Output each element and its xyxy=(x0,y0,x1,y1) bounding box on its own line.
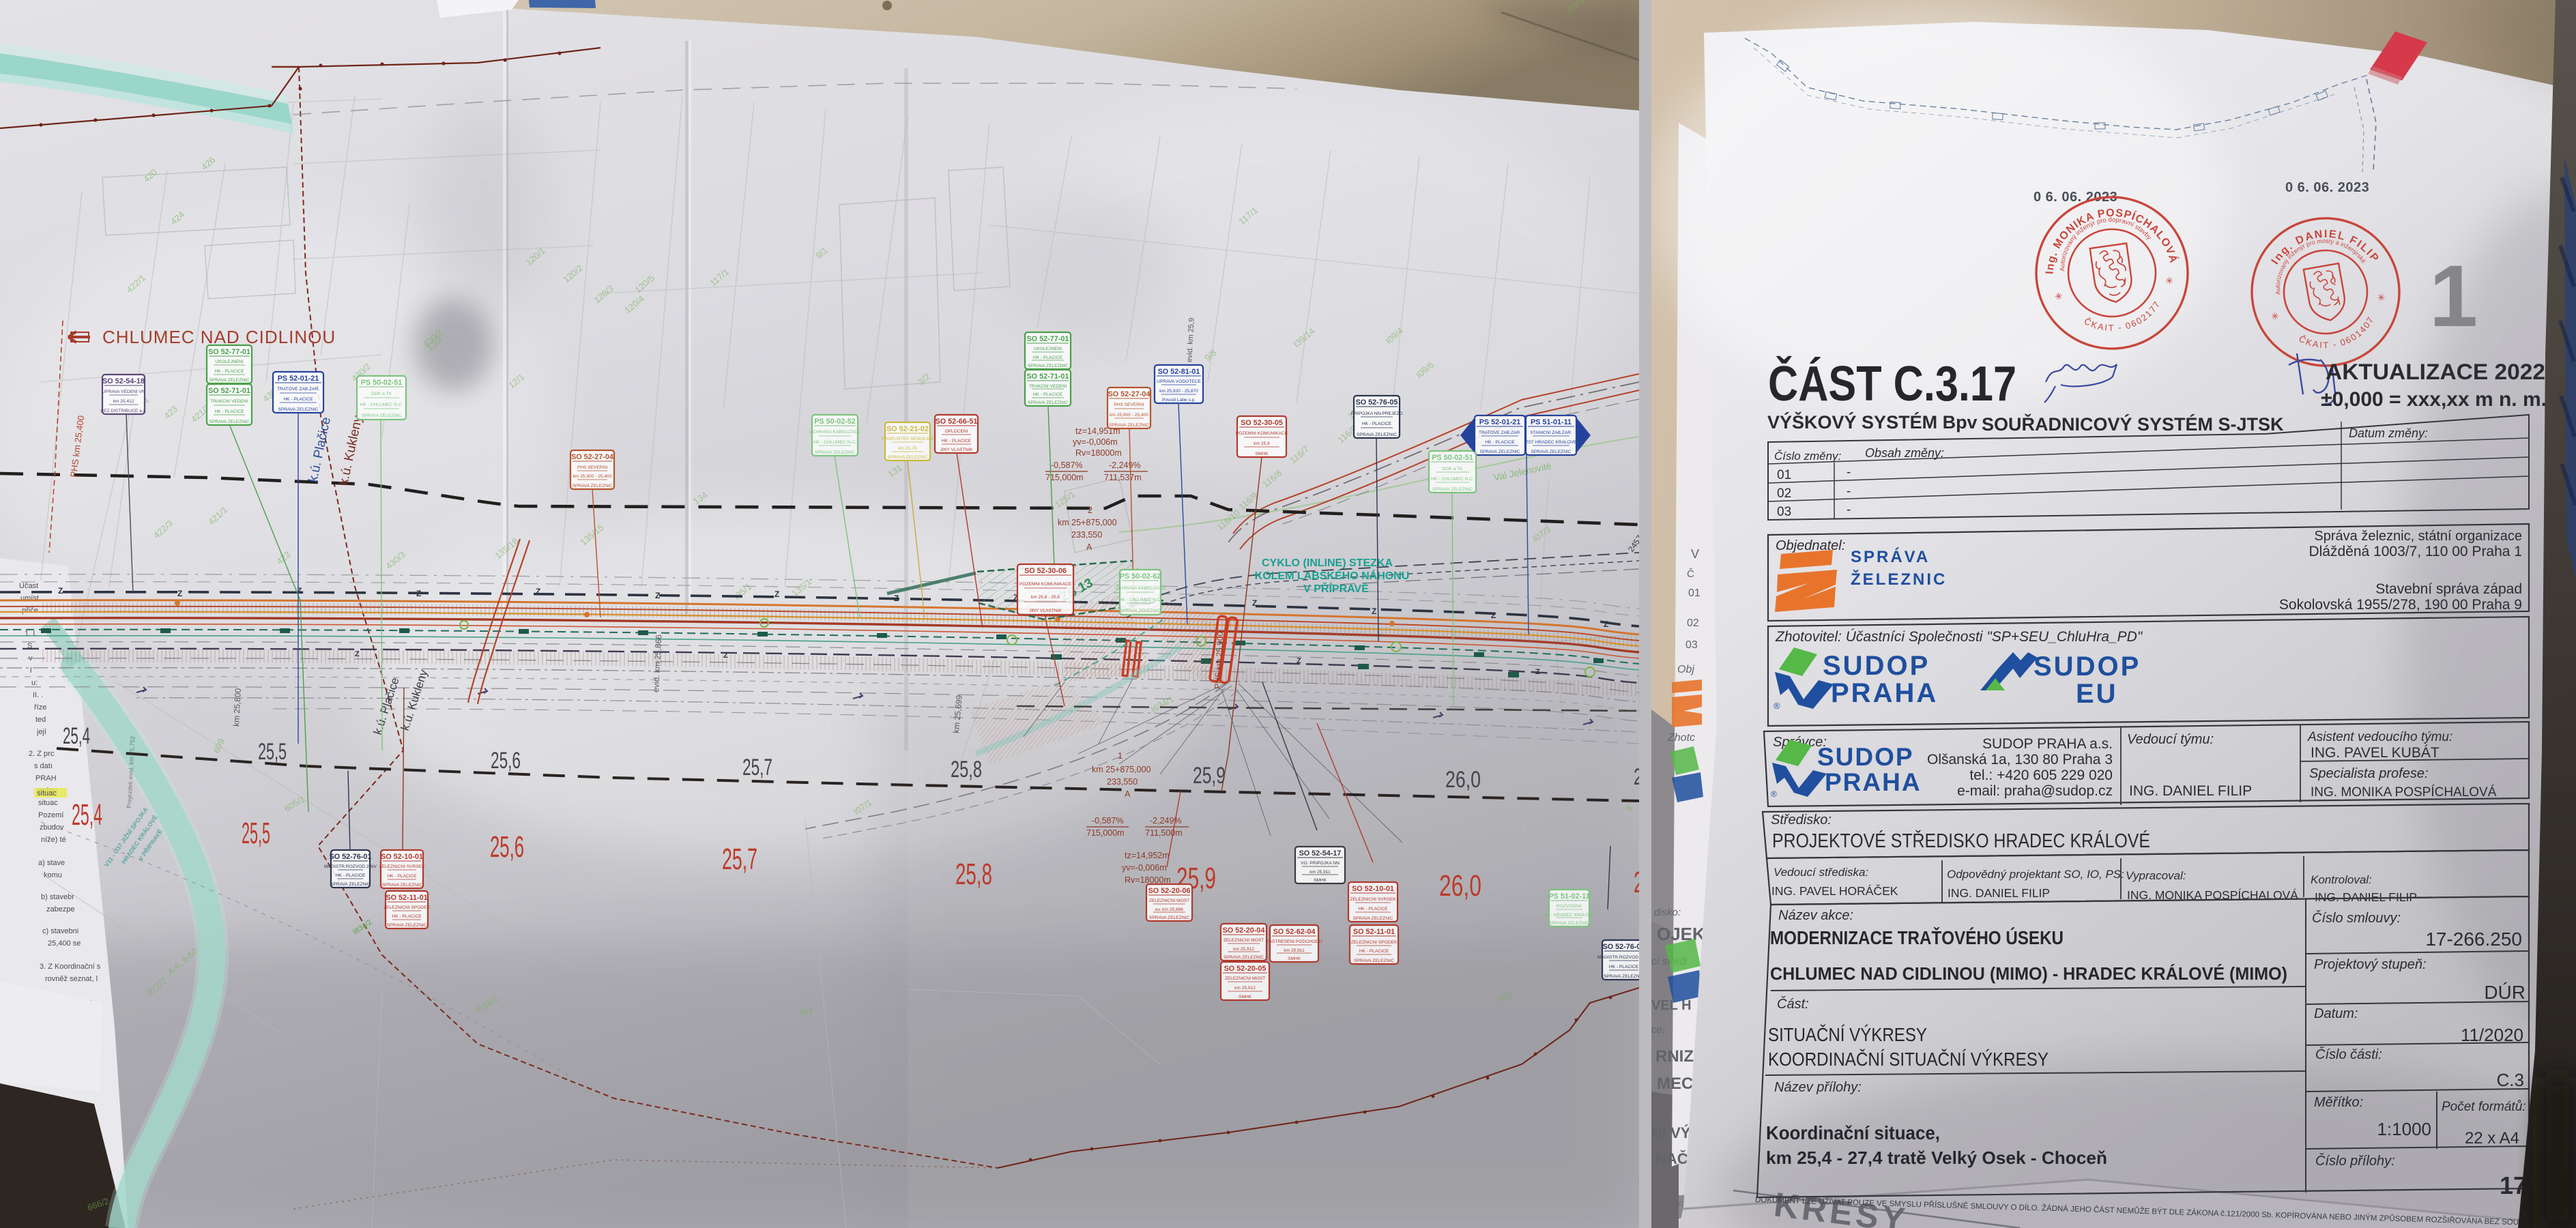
svg-text:Vypracoval:: Vypracoval: xyxy=(2126,869,2186,882)
svg-text:Pozemí: Pozemí xyxy=(38,811,63,819)
svg-text:ZST HRADEC KRALOVE: ZST HRADEC KRALOVE xyxy=(1526,440,1578,445)
svg-text:Objednatel:: Objednatel: xyxy=(1776,538,1845,553)
svg-text:ZELEZNICNI SPODEK: ZELEZNICNI SPODEK xyxy=(1351,940,1398,945)
svg-text:km 25,911: km 25,911 xyxy=(1284,948,1305,953)
svg-text:PRIPOJKA NN-PREJEZD: PRIPOJKA NN-PREJEZD xyxy=(1351,411,1403,416)
svg-text:ZELEZNICNI SPODEK: ZELEZNICNI SPODEK xyxy=(383,905,430,910)
svg-text:Stavební správa západ: Stavební správa západ xyxy=(2375,581,2522,597)
svg-text:HK - PLACICE: HK - PLACICE xyxy=(1485,440,1515,445)
svg-text:RNIZ: RNIZ xyxy=(1655,1047,1694,1066)
svg-text:MAGISTR.ROZVOD 22kV: MAGISTR.ROZVOD 22kV xyxy=(324,864,377,869)
svg-text:km 25+875,000: km 25+875,000 xyxy=(1058,518,1117,527)
svg-text:1: 1 xyxy=(1118,751,1123,761)
svg-text:25,9: 25,9 xyxy=(1193,763,1226,789)
svg-text:přiče: přiče xyxy=(22,606,38,615)
svg-text:11/2020: 11/2020 xyxy=(2461,1025,2523,1045)
svg-text:25,7: 25,7 xyxy=(722,843,757,876)
svg-text:PHS SEVERNI: PHS SEVERNI xyxy=(577,465,608,470)
svg-text:Obsah změny:: Obsah změny: xyxy=(1865,446,1944,460)
svg-text:233,550: 233,550 xyxy=(1107,777,1138,787)
svg-text:SO 52-54-17: SO 52-54-17 xyxy=(1299,849,1342,858)
svg-text:Projektový stupeň:: Projektový stupeň: xyxy=(2314,957,2427,972)
svg-text:Číslo smlouvy:: Číslo smlouvy: xyxy=(2312,910,2401,926)
svg-text:VO. PRIPOJKA NN: VO. PRIPOJKA NN xyxy=(1301,861,1340,866)
svg-text:HK - PLACICE: HK - PLACICE xyxy=(283,397,313,402)
svg-text:km 25,912: km 25,912 xyxy=(1234,986,1256,991)
svg-text:c) stavebni: c) stavebni xyxy=(42,927,78,935)
svg-text:UKOLEJNENI: UKOLEJNENI xyxy=(1034,347,1062,351)
svg-text:SPRAVA ZELEZNIC: SPRAVA ZELEZNIC xyxy=(1224,955,1264,960)
svg-text:SO 52-76-01: SO 52-76-01 xyxy=(330,853,372,861)
svg-text:ČÁST C.3.17: ČÁST C.3.17 xyxy=(1768,356,2016,411)
svg-text:MAGISTR.ROZVOD 22kV: MAGISTR.ROZVOD 22kV xyxy=(1597,955,1639,960)
svg-text:HK - PLACICE: HK - PLACICE xyxy=(1362,422,1392,426)
svg-text:km 25+875,000: km 25+875,000 xyxy=(1092,765,1151,774)
svg-text:POZEMNI KOMUNIKACE: POZEMNI KOMUNIKACE xyxy=(1236,431,1288,436)
svg-text:03: 03 xyxy=(1777,505,1791,519)
svg-text:25,4: 25,4 xyxy=(63,723,90,749)
svg-text:CHLUMEC NAD CIDLINOU (MIMO) -: CHLUMEC NAD CIDLINOU (MIMO) - HRADEC KRÁ… xyxy=(1770,963,2287,984)
svg-text:03: 03 xyxy=(1685,639,1698,651)
svg-text:SPRAVA ZELEZNIC: SPRAVA ZELEZNIC xyxy=(1352,916,1393,921)
svg-text:STANICNI ZAB.ZAR.: STANICNI ZAB.ZAR. xyxy=(1530,430,1572,435)
svg-text:SPRAVA ZELEZNIC: SPRAVA ZELEZNIC xyxy=(209,420,249,424)
svg-text:-0,587%: -0,587% xyxy=(1051,460,1083,470)
svg-text:HK - PLACICE: HK - PLACICE xyxy=(214,409,244,414)
svg-text:HK - CHLUMEC N.C.: HK - CHLUMEC N.C. xyxy=(1119,598,1162,602)
svg-text:Olšanská 1a, 130 80 Praha 3: Olšanská 1a, 130 80 Praha 3 xyxy=(1927,752,2113,767)
svg-text:Vedoucí střediska:: Vedoucí střediska: xyxy=(1774,866,1868,879)
svg-text:3. Z Koordinační s: 3. Z Koordinační s xyxy=(40,963,101,971)
svg-text:SUDOP: SUDOP xyxy=(1817,743,1914,771)
svg-text:Z: Z xyxy=(1252,598,1257,608)
svg-text:POZEMNI KOMUNIKACE: POZEMNI KOMUNIKACE xyxy=(1019,582,1072,587)
svg-text:TRAKCNI VEDENI: TRAKCNI VEDENI xyxy=(1029,384,1067,389)
svg-text:PROJEKTOVÉ STŘEDISKO HRADEC KR: PROJEKTOVÉ STŘEDISKO HRADEC KRÁLOVÉ xyxy=(1772,830,2150,852)
svg-text:SO 52-71-01: SO 52-71-01 xyxy=(1027,372,1069,381)
svg-text:rovněž seznat, l: rovněž seznat, l xyxy=(45,975,98,983)
svg-text:OJEK: OJEK xyxy=(1657,924,1705,944)
svg-text:SO 52-21-02: SO 52-21-02 xyxy=(886,425,929,433)
svg-text:km 25,412: km 25,412 xyxy=(113,399,134,404)
svg-text:01: 01 xyxy=(1688,587,1701,599)
svg-text:SO 52-77-01: SO 52-77-01 xyxy=(208,348,250,356)
svg-text:Z: Z xyxy=(58,586,63,596)
svg-text:SO 52-10-01: SO 52-10-01 xyxy=(381,853,423,861)
svg-text:Z: Z xyxy=(1491,611,1496,620)
svg-text:SO 52-27-04: SO 52-27-04 xyxy=(1108,390,1150,398)
svg-text:®: ® xyxy=(1771,789,1777,799)
svg-text:ING. DANIEL FILIP: ING. DANIEL FILIP xyxy=(1948,886,2050,900)
svg-text:V PŘÍPRAVĚ: V PŘÍPRAVĚ xyxy=(1303,582,1369,595)
svg-text:-2,249%: -2,249% xyxy=(1150,816,1182,825)
svg-text:PHS SEVERNI: PHS SEVERNI xyxy=(1114,403,1144,407)
svg-text:km 25,920 - 25,870: km 25,920 - 25,870 xyxy=(1159,389,1198,394)
svg-text:25,6: 25,6 xyxy=(491,748,521,774)
svg-text:25,400 se: 25,400 se xyxy=(48,939,81,948)
svg-text:26: 26 xyxy=(1634,764,1639,790)
svg-text:komu: komu xyxy=(44,871,62,879)
svg-text:EU: EU xyxy=(2076,679,2118,709)
svg-text:SO 52-62-04: SO 52-62-04 xyxy=(1273,928,1316,936)
svg-text:říze: říze xyxy=(34,703,46,712)
svg-text:km 25,900 - 25,400: km 25,900 - 25,400 xyxy=(573,474,612,479)
svg-text:OPLOCENI: OPLOCENI xyxy=(944,429,968,434)
svg-text:SPRÁVA: SPRÁVA xyxy=(1851,547,1930,566)
svg-text:tel.: +420 605 229 020: tel.: +420 605 229 020 xyxy=(1969,767,2113,783)
svg-text:Z: Z xyxy=(775,589,779,599)
svg-text:HK - PLACICE: HK - PLACICE xyxy=(1609,965,1639,969)
svg-text:SOUŘADNICOVÝ SYSTÉM S-JTSK: SOUŘADNICOVÝ SYSTÉM S-JTSK xyxy=(1982,413,2284,435)
svg-text:Číslo přílohy:: Číslo přílohy: xyxy=(2315,1153,2395,1169)
svg-text:Z: Z xyxy=(1372,606,1376,616)
svg-text:ZASTRESENI PODCHODU: ZASTRESENI PODCHODU xyxy=(1267,939,1322,944)
svg-text:PS 52-01-21: PS 52-01-21 xyxy=(278,375,319,383)
svg-text:disko:: disko: xyxy=(1654,907,1681,918)
svg-text:2. Z prc: 2. Z prc xyxy=(29,750,55,758)
svg-text:02: 02 xyxy=(1777,486,1791,501)
svg-text:MODERNIZACE TRAŤOVÉHO ÚSEKU: MODERNIZACE TRAŤOVÉHO ÚSEKU xyxy=(1770,927,2064,948)
svg-text:SPRAVA ZELEZNIC: SPRAVA ZELEZNIC xyxy=(1149,916,1189,920)
svg-text:SPRAVA ZELEZNIC: SPRAVA ZELEZNIC xyxy=(386,923,426,928)
svg-text:SO 52-54-18: SO 52-54-18 xyxy=(102,377,145,385)
svg-text:Zhotc: Zhotc xyxy=(1667,732,1695,744)
svg-text:zabezpe: zabezpe xyxy=(46,905,75,913)
svg-text:SO 52-20-06: SO 52-20-06 xyxy=(1148,887,1191,895)
svg-text:Počet formátů:: Počet formátů: xyxy=(2442,1100,2526,1114)
svg-text:SUDOP PRAHA a.s.: SUDOP PRAHA a.s. xyxy=(1982,736,2113,752)
svg-text:2: 2 xyxy=(1088,506,1092,515)
svg-text:ROZVODNA: ROZVODNA xyxy=(1557,904,1582,909)
svg-text:km 25,4 - 27,4 tratě Velký Ose: km 25,4 - 27,4 tratě Velký Osek - Choceň xyxy=(1766,1147,2107,1168)
svg-text:Měřítko:: Měřítko: xyxy=(2314,1095,2363,1110)
svg-text:PS 51-02-11: PS 51-02-11 xyxy=(1548,892,1589,901)
svg-text:HK - PLACICE: HK - PLACICE xyxy=(942,439,972,443)
svg-text:Dlážděná 1003/7, 110 00 Praha: Dlážděná 1003/7, 110 00 Praha 1 xyxy=(2309,544,2522,559)
svg-text:Účast: Účast xyxy=(19,581,38,590)
svg-text:Středisko:: Středisko: xyxy=(1771,813,1832,828)
svg-text:PS 50-02-51: PS 50-02-51 xyxy=(361,379,403,387)
svg-text:ev. km 25,886: ev. km 25,886 xyxy=(1155,907,1183,912)
svg-text:SPRAVA ZELEZNIC: SPRAVA ZELEZNIC xyxy=(887,455,927,460)
svg-text:SO 52-20-05: SO 52-20-05 xyxy=(1224,965,1267,973)
svg-text:zbudov: zbudov xyxy=(40,823,64,832)
svg-text:25,8: 25,8 xyxy=(951,757,982,783)
svg-text:-: - xyxy=(1847,503,1851,517)
svg-text:NÍ VÝ: NÍ VÝ xyxy=(1651,1124,1691,1141)
svg-text:25,6: 25,6 xyxy=(490,830,524,864)
svg-text:a) stave: a) stave xyxy=(38,859,65,867)
svg-text:km 25,900 - 25,400: km 25,900 - 25,400 xyxy=(1110,413,1148,418)
svg-text:SUDOP: SUDOP xyxy=(2034,652,2141,682)
svg-text:PS 50-02-51: PS 50-02-51 xyxy=(1432,454,1473,462)
svg-text:02: 02 xyxy=(1687,617,1699,629)
svg-text:Z: Z xyxy=(723,652,728,660)
svg-text:Z: Z xyxy=(1297,657,1301,665)
svg-text:TRATOVE ZAB.ZAR.: TRATOVE ZAB.ZAR. xyxy=(277,387,319,392)
svg-text:715,000m: 715,000m xyxy=(1086,828,1125,838)
svg-text:HK - PLACICE: HK - PLACICE xyxy=(1033,355,1063,360)
svg-text:233,550: 233,550 xyxy=(1071,530,1102,540)
svg-text:Z: Z xyxy=(1535,668,1540,676)
svg-text:SPRAVA ZELEZNIC: SPRAVA ZELEZNIC xyxy=(1028,364,1068,368)
svg-text:-0,587%: -0,587% xyxy=(1092,816,1124,825)
svg-text:±0,000 = xxx,xx m n. m.: ±0,000 = xxx,xx m n. m. xyxy=(2321,388,2547,411)
svg-text:km 25,911: km 25,911 xyxy=(1309,870,1331,875)
svg-text:SO 52-71-01: SO 52-71-01 xyxy=(208,387,250,395)
svg-text:SO 52-11-01: SO 52-11-01 xyxy=(386,894,427,902)
svg-text:PROPUSTEK DEMOLICE: PROPUSTEK DEMOLICE xyxy=(882,437,935,441)
svg-text:Z: Z xyxy=(416,589,421,598)
svg-text:25,4: 25,4 xyxy=(72,798,102,832)
svg-text:UPRAVA VODOTECE: UPRAVA VODOTECE xyxy=(1157,379,1201,384)
svg-text:ZELEZNICNI SVRSEK: ZELEZNICNI SVRSEK xyxy=(1350,897,1396,902)
svg-text:1:1000: 1:1000 xyxy=(2377,1119,2431,1139)
svg-text:25,5: 25,5 xyxy=(258,739,287,765)
svg-text:Z: Z xyxy=(536,587,540,596)
svg-text:KOLEM LABSKÉHO NÁHONU: KOLEM LABSKÉHO NÁHONU xyxy=(1255,569,1410,582)
svg-text:HK - PLACICE: HK - PLACICE xyxy=(1359,949,1389,954)
svg-text:km 25,78: km 25,78 xyxy=(898,446,916,451)
svg-text:ING. DANIEL FILIP: ING. DANIEL FILIP xyxy=(2129,783,2252,799)
svg-text:OCHRANA KABELIZACE: OCHRANA KABELIZACE xyxy=(1114,586,1166,591)
svg-text:Datum změny:: Datum změny: xyxy=(2349,426,2428,440)
svg-text:její: její xyxy=(36,728,46,736)
svg-text:ZELEZNICNI MOST: ZELEZNICNI MOST xyxy=(1224,938,1264,943)
svg-text:CHLUMEC NAD CIDLINOU: CHLUMEC NAD CIDLINOU xyxy=(102,327,336,347)
svg-text:HK - PLACICE: HK - PLACICE xyxy=(1358,907,1388,911)
svg-text:s datı: s datı xyxy=(34,762,53,770)
svg-text:SUDOP: SUDOP xyxy=(1823,651,1930,681)
svg-text:®: ® xyxy=(1774,701,1780,711)
svg-text:1. L: 1. L xyxy=(25,630,37,638)
svg-text:DOK a TK: DOK a TK xyxy=(1443,467,1464,471)
svg-text:km 25,800: km 25,800 xyxy=(231,688,243,727)
svg-text:PRAHA: PRAHA xyxy=(1831,678,1938,708)
svg-text:Z: Z xyxy=(655,591,660,600)
svg-text:01: 01 xyxy=(1777,468,1791,482)
svg-text:SPRAVA ZELEZNIC: SPRAVA ZELEZNIC xyxy=(1109,423,1149,428)
svg-text:Číslo změny:: Číslo změny: xyxy=(1774,450,1842,463)
svg-text:HK - PLACICE: HK - PLACICE xyxy=(387,874,417,879)
svg-text:Správa železnic, státní organi: Správa železnic, státní organizace xyxy=(2314,529,2522,544)
svg-text:II. .: II. . xyxy=(33,691,43,699)
svg-text:VÝŠKOVÝ SYSTÉM Bpv: VÝŠKOVÝ SYSTÉM Bpv xyxy=(1767,411,1978,433)
svg-text:AKTUALIZACE 2022: AKTUALIZACE 2022 xyxy=(2326,360,2545,384)
svg-text:Z: Z xyxy=(355,650,360,658)
svg-text:SO 52-20-04: SO 52-20-04 xyxy=(1223,926,1265,935)
svg-text:SPRAVA ZELEZNIC: SPRAVA ZELEZNIC xyxy=(1479,450,1520,454)
svg-text:UKOLEJNENI: UKOLEJNENI xyxy=(215,360,244,364)
svg-text:Asistent vedoucího týmu:: Asistent vedoucího týmu: xyxy=(2307,730,2452,744)
svg-text:SITUAČNÍ VÝKRESY: SITUAČNÍ VÝKRESY xyxy=(1768,1024,1927,1045)
svg-text:PRAH: PRAH xyxy=(35,774,57,783)
svg-text:Číslo části:: Číslo části: xyxy=(2315,1047,2382,1062)
svg-text:UPRAVA VEDENI VN: UPRAVA VEDENI VN xyxy=(102,390,145,394)
svg-text:ce:: ce: xyxy=(1651,1024,1665,1036)
svg-text:b) stavebr: b) stavebr xyxy=(41,893,74,901)
svg-text:-: - xyxy=(1847,484,1851,499)
svg-text:SMHK: SMHK xyxy=(1314,878,1327,883)
svg-text:Specialista profese:: Specialista profese: xyxy=(2309,766,2429,781)
svg-text:Z: Z xyxy=(894,594,899,603)
svg-text:1: 1 xyxy=(2429,248,2478,345)
svg-text:✳: ✳ xyxy=(2054,290,2064,302)
svg-text:e-mail: praha@sudop.cz: e-mail: praha@sudop.cz xyxy=(1957,783,2113,799)
svg-text:SO 52-11-01: SO 52-11-01 xyxy=(1353,928,1395,936)
svg-text:Povodi Labe s.p.: Povodi Labe s.p. xyxy=(1162,398,1196,403)
svg-text:situac: situac xyxy=(38,799,58,807)
svg-text:SPRAVA ZELEZNIC: SPRAVA ZELEZNIC xyxy=(209,378,249,383)
svg-text:SPRAVA ZELEZNIC: SPRAVA ZELEZNIC xyxy=(815,450,855,455)
svg-text:km 25,912: km 25,912 xyxy=(1233,947,1254,952)
svg-text:ZELEZNICNI SVRSEK: ZELEZNICNI SVRSEK xyxy=(379,864,425,869)
svg-text:Z: Z xyxy=(177,589,182,598)
svg-text:Zhotovitel: Účastníci Společno: Zhotovitel: Účastníci Společnosti "SP+SE… xyxy=(1775,629,2143,645)
svg-text:Obj: Obj xyxy=(1677,664,1694,675)
svg-text:Datum:: Datum: xyxy=(2314,1006,2358,1021)
svg-text:26,0: 26,0 xyxy=(1439,869,1481,903)
svg-text:ING. MONIKA POSPÍCHALOVÁ: ING. MONIKA POSPÍCHALOVÁ xyxy=(2311,785,2497,800)
svg-text:HK - PLACICE: HK - PLACICE xyxy=(336,873,366,878)
svg-text:Sokolovská 1955/278, 190 00 Pr: Sokolovská 1955/278, 190 00 Praha 9 xyxy=(2279,597,2522,613)
svg-text:HK - CHLUMEC N.C.: HK - CHLUMEC N.C. xyxy=(813,440,856,445)
svg-text:Vedoucí týmu:: Vedoucí týmu: xyxy=(2127,732,2214,747)
svg-text:SPRAVA ZELEZNIC: SPRAVA ZELEZNIC xyxy=(278,407,318,412)
svg-text:KOORDINAČNÍ SITUAČNÍ VÝKRESY: KOORDINAČNÍ SITUAČNÍ VÝKRESY xyxy=(1768,1049,2049,1070)
svg-text:Rv=18000m: Rv=18000m xyxy=(1075,448,1122,458)
svg-text:SPRAVA ZELEZNIC: SPRAVA ZELEZNIC xyxy=(1354,959,1394,963)
svg-text:26: 26 xyxy=(1634,866,1639,899)
svg-text:ŽELEZNIC: ŽELEZNIC xyxy=(1851,570,1947,589)
svg-text:TRATOVE ZAB.ZAR.: TRATOVE ZAB.ZAR. xyxy=(1479,430,1521,435)
svg-text:HK - CHLUMEC N.C.: HK - CHLUMEC N.C. xyxy=(360,403,403,407)
svg-text:SPRAVA ZELEZNIC: SPRAVA ZELEZNIC xyxy=(1357,433,1397,437)
svg-text:Odpovědný projektant SO, IO, P: Odpovědný projektant SO, IO, PS: xyxy=(1947,868,2124,881)
svg-text:ING. PAVEL HORÁČEK: ING. PAVEL HORÁČEK xyxy=(1771,883,1898,898)
svg-text:SPRAVA ZELEZNIC: SPRAVA ZELEZNIC xyxy=(1604,974,1639,979)
svg-text:JINY VLASTNIK: JINY VLASTNIK xyxy=(940,448,973,452)
svg-text:SPRAVA ZELEZNIC: SPRAVA ZELEZNIC xyxy=(1028,400,1068,405)
svg-text:MEC: MEC xyxy=(1657,1074,1693,1093)
svg-text:0 6. 06. 2023: 0 6. 06. 2023 xyxy=(2285,180,2369,195)
svg-text:SO 52-66-51: SO 52-66-51 xyxy=(936,418,978,426)
svg-text:SMHK: SMHK xyxy=(1239,995,1252,999)
svg-text:JINY VLASTNIK: JINY VLASTNIK xyxy=(1029,609,1062,613)
svg-text:Č: Č xyxy=(1687,568,1694,580)
svg-text:SPRAVA ZELEZNIC: SPRAVA ZELEZNIC xyxy=(381,883,422,888)
svg-text:SPRAVA ZELEZNIC: SPRAVA ZELEZNIC xyxy=(1531,450,1571,454)
svg-text:PS 52-01-21: PS 52-01-21 xyxy=(1479,418,1521,426)
svg-text:HK - PLACICE: HK - PLACICE xyxy=(214,369,244,374)
svg-text:SPRAVA ZELEZNIC: SPRAVA ZELEZNIC xyxy=(1549,921,1589,926)
svg-text:CEZ DISTRIBUCE a.s.: CEZ DISTRIBUCE a.s. xyxy=(100,409,147,413)
svg-text:VEL H: VEL H xyxy=(1651,998,1692,1013)
svg-text:HK - HRADEC KRALOVE: HK - HRADEC KRALOVE xyxy=(1544,913,1595,918)
svg-text:26,0: 26,0 xyxy=(1445,767,1481,793)
svg-text:Část:: Část: xyxy=(1777,996,1809,1012)
svg-text:tz=14,952m: tz=14,952m xyxy=(1125,851,1170,860)
svg-text:Kontroloval:: Kontroloval: xyxy=(2311,873,2372,886)
svg-text:22 x A4: 22 x A4 xyxy=(2465,1129,2519,1147)
svg-text:SO 52-30-06: SO 52-30-06 xyxy=(1024,567,1067,575)
svg-text:SPRAVA ZELEZNIC: SPRAVA ZELEZNIC xyxy=(1432,487,1473,492)
svg-text:Z: Z xyxy=(1604,619,1608,629)
svg-text:l: l xyxy=(30,667,31,675)
svg-text:25,7: 25,7 xyxy=(742,755,772,780)
svg-text:DÚR: DÚR xyxy=(2484,982,2526,1003)
svg-text:Koordinační situace,: Koordinační situace, xyxy=(1766,1122,1940,1143)
svg-text:SMHK: SMHK xyxy=(1255,452,1269,456)
svg-text:C.3: C.3 xyxy=(2497,1070,2524,1090)
svg-text:A: A xyxy=(1125,789,1131,799)
svg-text:níže) té: níže) té xyxy=(41,836,66,844)
svg-text:SPRAVA ZELEZNIC: SPRAVA ZELEZNIC xyxy=(330,882,371,887)
svg-text:yv=-0,006m: yv=-0,006m xyxy=(1073,437,1118,447)
svg-text:A: A xyxy=(1086,542,1092,552)
svg-text:ING. PAVEL KUBÁT: ING. PAVEL KUBÁT xyxy=(2311,745,2440,761)
svg-text:SO 52-10-01: SO 52-10-01 xyxy=(1352,885,1394,893)
svg-text:SO 52-27-04: SO 52-27-04 xyxy=(571,453,613,461)
svg-text:V: V xyxy=(1691,547,1699,561)
svg-text:ZELEZNICNI MOST: ZELEZNICNI MOST xyxy=(1225,976,1265,981)
svg-text:CYKLO (INLINE) STEZKA: CYKLO (INLINE) STEZKA xyxy=(1262,557,1393,569)
svg-text:DOK a TK: DOK a TK xyxy=(371,392,392,396)
svg-text:SO 52-76-05: SO 52-76-05 xyxy=(1356,398,1398,407)
svg-text:SMHK: SMHK xyxy=(1288,956,1301,961)
svg-text:ted: ted xyxy=(35,716,46,724)
svg-text:km 25,9: km 25,9 xyxy=(1254,441,1270,446)
svg-text:HK - PLACICE: HK - PLACICE xyxy=(392,914,422,919)
svg-text:HK - PLACICE: HK - PLACICE xyxy=(1033,392,1063,397)
svg-text:yv=-0,006m: yv=-0,006m xyxy=(1122,863,1167,873)
svg-text:PS 50-02-52: PS 50-02-52 xyxy=(814,418,856,426)
svg-text:Název akce:: Název akce: xyxy=(1778,908,1853,923)
svg-text:SPRAVA ZELEZNIC: SPRAVA ZELEZNIC xyxy=(572,484,612,488)
svg-text:SO 52-81-01: SO 52-81-01 xyxy=(1158,368,1200,376)
svg-text:25,5: 25,5 xyxy=(242,817,270,850)
svg-text:ZELEZNICNI MOST: ZELEZNICNI MOST xyxy=(1149,898,1189,903)
svg-text:SO 52-77-01: SO 52-77-01 xyxy=(1027,335,1069,343)
svg-text:✳: ✳ xyxy=(2165,275,2174,287)
svg-text:Název přílohy:: Název přílohy: xyxy=(1774,1080,1862,1095)
svg-text:SPRAVA ZELEZNIC: SPRAVA ZELEZNIC xyxy=(1120,609,1160,613)
svg-text:SO 52-76-01: SO 52-76-01 xyxy=(1603,943,1639,951)
svg-text:NAČ: NAČ xyxy=(1655,1150,1688,1167)
svg-text:PS 51-01-11: PS 51-01-11 xyxy=(1531,418,1572,426)
svg-text:25,8: 25,8 xyxy=(955,858,992,891)
svg-text:situac: situac xyxy=(37,789,57,798)
svg-text:TRAKCNI VEDENI: TRAKCNI VEDENI xyxy=(210,399,248,404)
svg-text:OCHRANA KABELIZACE: OCHRANA KABELIZACE xyxy=(809,430,861,435)
svg-text:SPRAVA ZELEZNIC: SPRAVA ZELEZNIC xyxy=(361,413,401,418)
svg-text:-: - xyxy=(1847,465,1851,480)
svg-text:711,500m: 711,500m xyxy=(1145,828,1183,838)
svg-text:u:: u: xyxy=(31,679,38,687)
svg-text:17-266.250: 17-266.250 xyxy=(2425,929,2522,950)
svg-text:km 25,8 - 25,8: km 25,8 - 25,8 xyxy=(1031,595,1060,600)
svg-text:-2,249%: -2,249% xyxy=(1109,460,1141,470)
svg-text:711,537m: 711,537m xyxy=(1104,473,1142,482)
svg-text:SO 52-30-05: SO 52-30-05 xyxy=(1241,419,1283,427)
svg-text:PRAHA: PRAHA xyxy=(1825,768,1922,796)
svg-text:HK - CHLUMEC N.C.: HK - CHLUMEC N.C. xyxy=(1431,477,1474,482)
svg-text:PS 50-02-62: PS 50-02-62 xyxy=(1120,572,1161,581)
